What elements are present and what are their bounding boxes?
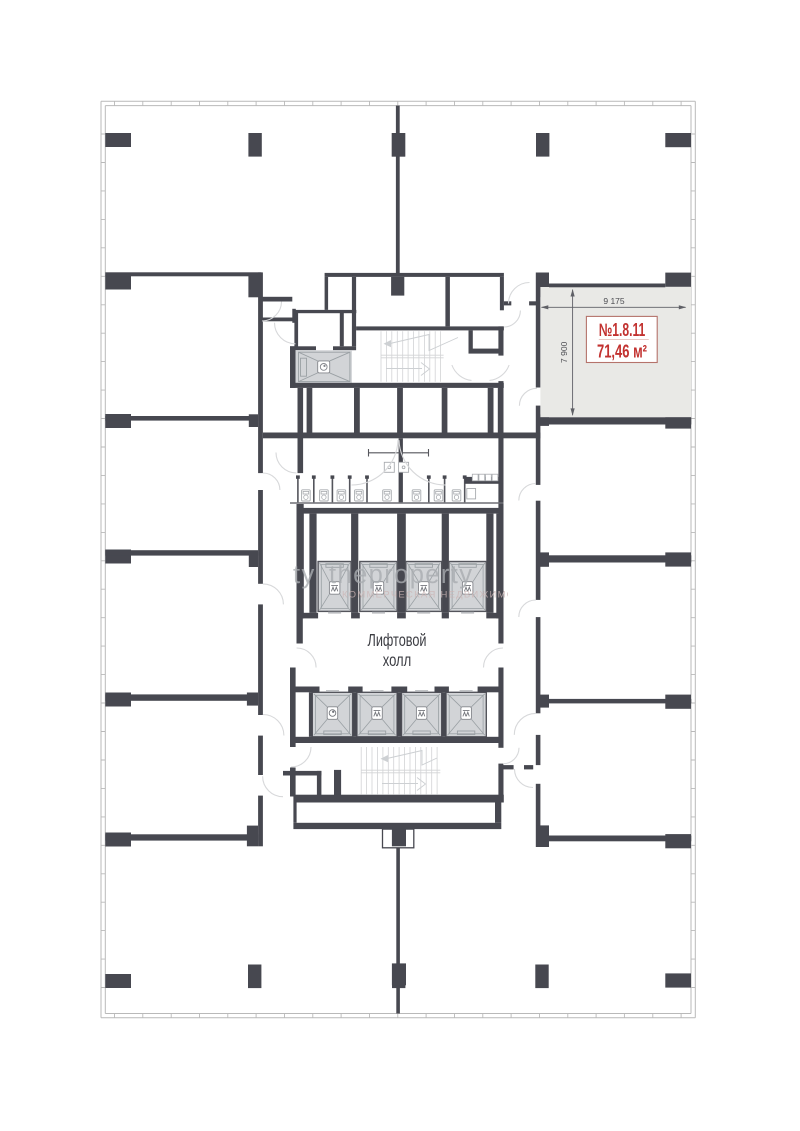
svg-text:71,46 м²: 71,46 м² — [597, 342, 647, 362]
svg-text:№1.8.11: №1.8.11 — [599, 320, 646, 340]
svg-text:холл: холл — [383, 650, 412, 670]
svg-text:9 175: 9 175 — [603, 296, 625, 306]
svg-text:theproperty: theproperty — [329, 561, 473, 589]
svg-text:7 900: 7 900 — [559, 341, 569, 363]
svg-text:ty: ty — [293, 561, 316, 589]
svg-text:Лифтовой: Лифтовой — [368, 630, 427, 650]
